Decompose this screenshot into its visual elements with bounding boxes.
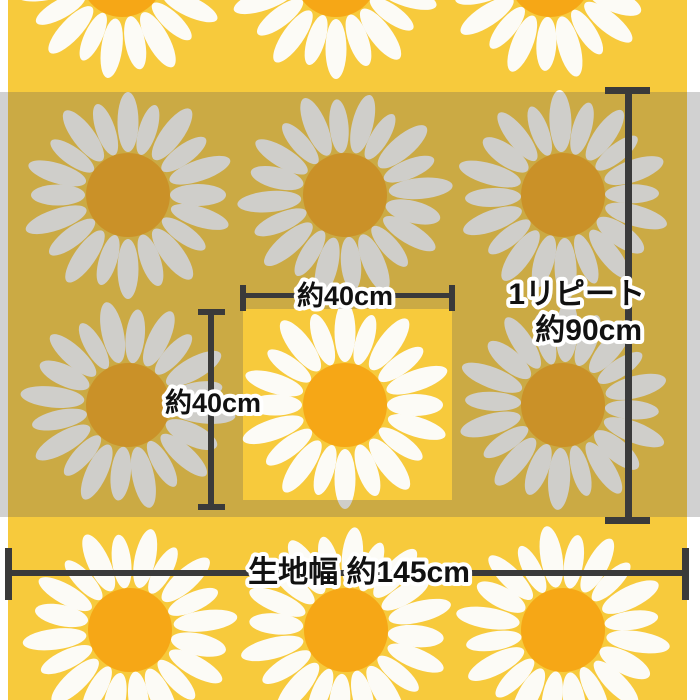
daisy-flower [20, 520, 240, 700]
repeat-cap-top [605, 87, 650, 94]
daisy-flower [18, 85, 238, 305]
daisy-flower [440, 0, 660, 85]
fabric-size-diagram: 約40cm 約40cm 1リピート 約90cm 生地幅 約145cm [0, 0, 700, 700]
motif-height-label: 約40cm [126, 379, 301, 425]
repeat-label: 1リピート 約90cm [455, 273, 650, 355]
svg-text:約40cm: 約40cm [297, 280, 393, 311]
motif-width-cap-left [240, 285, 246, 311]
daisy-flower [226, 0, 446, 85]
svg-text:1リピート: 1リピート [508, 278, 645, 311]
motif-height-cap-top [198, 309, 225, 315]
fabric-width-cap-left [5, 548, 12, 600]
fabric-width-label: 生地幅 約145cm [228, 548, 490, 596]
motif-height-cap-bottom [198, 504, 225, 510]
daisy-flower [453, 520, 673, 700]
svg-text:約40cm: 約40cm [165, 387, 261, 418]
daisy-flower [12, 0, 232, 85]
svg-text:生地幅 約145cm: 生地幅 約145cm [248, 556, 470, 589]
motif-width-label: 約40cm [258, 272, 433, 318]
fabric-width-cap-right [682, 548, 689, 600]
svg-text:約90cm: 約90cm [535, 314, 642, 347]
daisy-flower [453, 85, 673, 305]
repeat-cap-bottom [605, 517, 650, 524]
daisy-flower [236, 520, 456, 700]
